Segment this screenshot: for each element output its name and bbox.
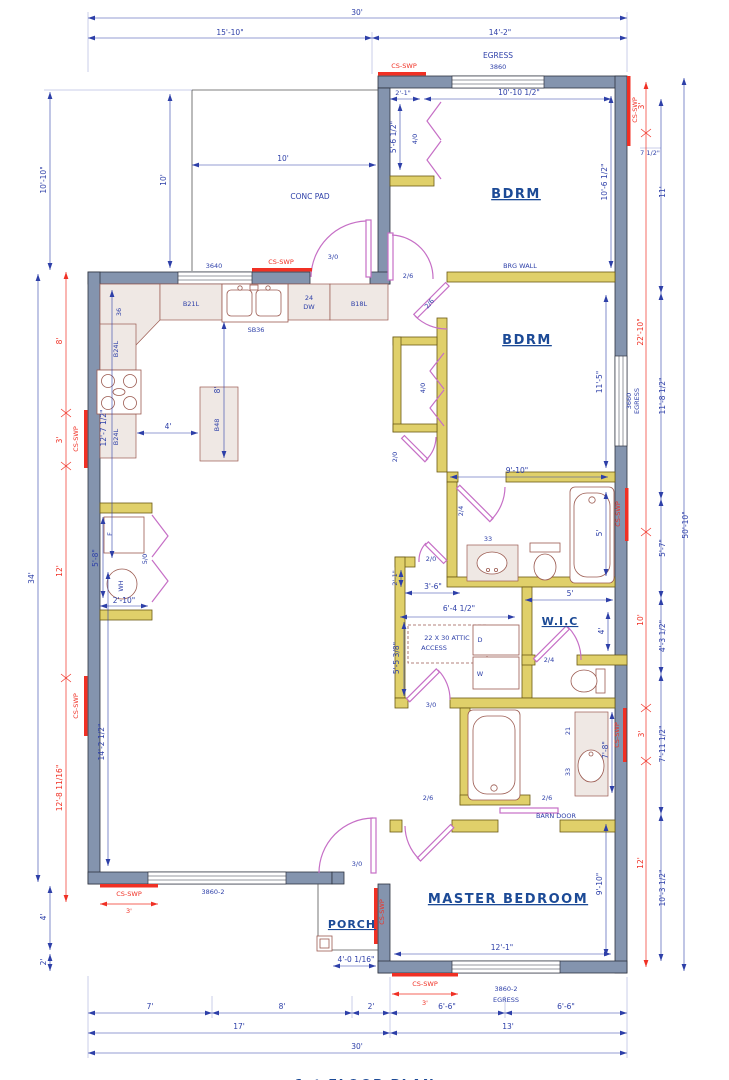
barn-door-label: BARN DOOR — [536, 812, 577, 820]
bifold-5-0-utility — [152, 515, 168, 602]
window-3860-2-living — [148, 872, 286, 884]
water-heater-label: WH — [117, 580, 125, 591]
hall-nook: 3'-6" — [424, 582, 442, 591]
hall-h: 5'-5 3/8" — [392, 642, 401, 674]
bifold-4-0-bdrm1-closet — [427, 102, 441, 179]
shear-left-a: CS-SWP — [72, 426, 80, 452]
bdrm2-w: 9'-10" — [506, 466, 529, 475]
master-window-egress: EGRESS — [493, 996, 519, 1004]
dim-left-red12-8: 12'-8 11/16" — [55, 765, 64, 812]
kitchen-cabinets — [97, 284, 388, 461]
kitchen-window: 3640 — [206, 262, 223, 270]
porch-door: 3/0 — [352, 860, 362, 868]
hall-w: 6'-4 1/2" — [443, 604, 475, 613]
master-window: 3860-2 — [494, 985, 517, 993]
cab-dw: DW — [303, 303, 315, 311]
floor-plan-drawing: 30' 15'-10" 14'-2" EGRESS 3860 CS-SWP 2'… — [0, 0, 729, 1080]
floor-plan-page: 30' 15'-10" 14'-2" EGRESS 3860 CS-SWP 2'… — [0, 0, 729, 1080]
wic-door: 2/4 — [544, 656, 554, 664]
furnace-label: F — [106, 532, 114, 536]
cab-b48: B48 — [213, 419, 221, 432]
dim-right-7h: 7 1/2" — [640, 149, 660, 157]
dim-bottom-2: 2' — [368, 1002, 375, 1011]
master-tub — [468, 710, 520, 800]
mbath-v33: 33 — [564, 768, 572, 776]
dimension-lines-red — [61, 82, 651, 994]
dim-right-red3a: 3' — [637, 103, 646, 110]
dim-left-red12: 12' — [55, 565, 64, 577]
cab-b24l-b: B24L — [112, 428, 120, 445]
window-egress-3860 — [452, 76, 544, 88]
door-3-0-concpad — [311, 220, 371, 277]
bath1-vanity: 33 — [484, 535, 492, 543]
shear-master-left: CS-SWP — [378, 899, 386, 925]
living-window: 3860-2 — [201, 888, 224, 896]
dim-right-total: 50'-10" — [681, 511, 690, 538]
wic-w: 5' — [567, 589, 574, 598]
cab-dw-24: 24 — [305, 294, 313, 302]
shear-wall-bars — [84, 72, 631, 977]
door-2-6-master — [405, 825, 454, 861]
conc-pad-outline — [192, 90, 378, 271]
door-3-0-porch — [319, 818, 376, 873]
bath1-tub — [570, 487, 614, 583]
conc-w: 10' — [277, 154, 289, 163]
dim-right-4-3: 4'-3 1/2" — [658, 620, 667, 652]
bdrm1-door: 2/6 — [403, 272, 413, 280]
brg-wall: BRG WALL — [503, 262, 537, 270]
dim-top-overall: 30' — [351, 8, 363, 17]
wic-toilet — [571, 669, 605, 693]
barn-door-size: 2/6 — [542, 794, 552, 802]
porch-w: 4'-0 1/16" — [338, 955, 375, 964]
bdrm2-closet-door: 4/0 — [419, 383, 427, 393]
kitchen-sink-sb36 — [222, 284, 288, 322]
master-bath-fixtures — [468, 710, 608, 800]
bath1-toilet — [530, 543, 560, 580]
bdrm1-closet-w: 2'-1" — [395, 89, 410, 97]
cab-b24l-a: B24L — [112, 340, 120, 357]
cab-b21l: B21L — [183, 300, 200, 308]
attic-access-2: ACCESS — [421, 644, 447, 652]
bdrm1-w: 10'-10 1/2" — [498, 88, 540, 97]
dim-bottom-17: 17' — [233, 1022, 245, 1031]
bdrm2-nook-door: 2/0 — [391, 452, 399, 462]
dim-right-red3b: 3' — [637, 731, 646, 738]
shear-top: CS-SWP — [391, 62, 417, 70]
dim-left-red8: 8' — [55, 338, 64, 345]
room-bdrm2: BDRM — [502, 333, 552, 348]
utility-door: 5/0 — [141, 554, 149, 564]
exterior-walls — [88, 76, 627, 973]
mbath-h: 7'-8" — [601, 741, 610, 759]
conc-h: 10' — [159, 174, 168, 186]
room-bdrm1: BDRM — [491, 187, 541, 202]
dim-right-11-8: 11'-8 1/2" — [658, 378, 667, 415]
bath1-door: 2/4 — [457, 506, 465, 516]
dim-left-14-2: 14'-2 1/2" — [97, 724, 106, 761]
bdrm2-h: 11'-5" — [595, 371, 604, 394]
window-3860-2-master — [452, 961, 560, 973]
kitchen-d8: 8' — [213, 387, 222, 394]
shear-bottom-left-3: 3' — [126, 907, 132, 915]
shear-master-bottom: CS-SWP — [412, 980, 438, 988]
door-2-4-wic — [534, 626, 581, 662]
cab-b18l: B18L — [351, 300, 368, 308]
shear-bottom-left: CS-SWP — [116, 890, 142, 898]
mbath-door: 2/6 — [423, 794, 433, 802]
dim-bottom-6a: 6'-6" — [438, 1002, 456, 1011]
mbath-v21: 21 — [564, 727, 572, 735]
bdrm1-closet-door: 4/0 — [411, 134, 419, 144]
bdrm1-h: 10'-6 1/2" — [600, 164, 609, 201]
wic-h: 4' — [597, 628, 606, 635]
kitchen-d4: 4' — [165, 422, 172, 431]
utility-w: 2'-10" — [113, 596, 136, 605]
shear-kitchen: CS-SWP — [268, 258, 294, 266]
top-window-egress: EGRESS — [483, 51, 513, 60]
dim-right-22: 22'-10" — [636, 318, 645, 345]
room-porch: PORCH — [328, 918, 376, 931]
linen-door: 2/0 — [426, 555, 436, 563]
bdrm2-window: 3660 — [625, 393, 633, 410]
room-wic: W.I.C — [542, 615, 579, 628]
cab-36: 36 — [115, 308, 123, 316]
dishwasher-24 — [288, 284, 330, 320]
door-2-0-bdrm2-nook — [402, 436, 436, 462]
washer-label: W — [477, 670, 484, 678]
shear-master-bottom-3: 3' — [422, 999, 428, 1007]
utility-h: 5'-8" — [91, 549, 100, 567]
dim-right-11: 11' — [658, 186, 667, 198]
dim-left-red3: 3' — [55, 437, 64, 444]
attic-access-1: 22 X 30 ATTIC — [424, 634, 470, 642]
shear-right-low: CS-SWP — [613, 722, 621, 748]
bdrm1-closet-h: 5'-6 1/2" — [389, 121, 398, 153]
dim-bottom-30: 30' — [351, 1042, 363, 1051]
room-master: MASTER BEDROOM — [428, 892, 588, 907]
cab-sb36: SB36 — [248, 326, 265, 334]
dim-left-upper: 10'-10" — [39, 166, 48, 193]
dim-left-12-7: 12'-7 1/2" — [99, 410, 108, 447]
dim-right-7-11: 7'-11 1/2" — [658, 726, 667, 763]
dim-bottom-13: 13' — [502, 1022, 514, 1031]
door-3-0-laundry — [407, 669, 450, 702]
hall-door: 3/0 — [426, 701, 436, 709]
dim-top-left: 15'-10" — [216, 28, 243, 37]
bdrm2-window-egress: EGRESS — [633, 388, 641, 414]
dim-right-red10: 10' — [636, 614, 645, 626]
master-h: 9'-10" — [595, 873, 604, 896]
dim-right-5-7: 5'-7" — [658, 539, 667, 557]
dim-bottom-7: 7' — [147, 1002, 154, 1011]
dim-bottom-6b: 6'-6" — [557, 1002, 575, 1011]
dim-bottom-8: 8' — [279, 1002, 286, 1011]
top-window-size: 3860 — [490, 63, 507, 71]
room-conc-pad: CONC PAD — [290, 192, 330, 201]
master-w: 12'-1" — [491, 943, 514, 952]
dim-top-right: 14'-2" — [489, 28, 512, 37]
range-stove — [97, 370, 141, 414]
shear-right-mid: CS-SWP — [614, 501, 622, 527]
conc-door: 3/0 — [328, 253, 338, 261]
dim-left-total: 34' — [27, 572, 36, 584]
bath1-tub-dim: 5' — [595, 530, 604, 537]
dim-right-red12: 12' — [636, 857, 645, 869]
dryer-label: D — [477, 636, 482, 644]
hall-nook-w: 2'-1" — [391, 570, 399, 585]
dim-left-low2: 2' — [39, 959, 48, 966]
shear-left-b: CS-SWP — [72, 693, 80, 719]
window-3640 — [178, 272, 252, 284]
dim-left-low4: 4' — [39, 914, 48, 921]
dim-right-10-3: 10'-3 1/2" — [658, 870, 667, 907]
